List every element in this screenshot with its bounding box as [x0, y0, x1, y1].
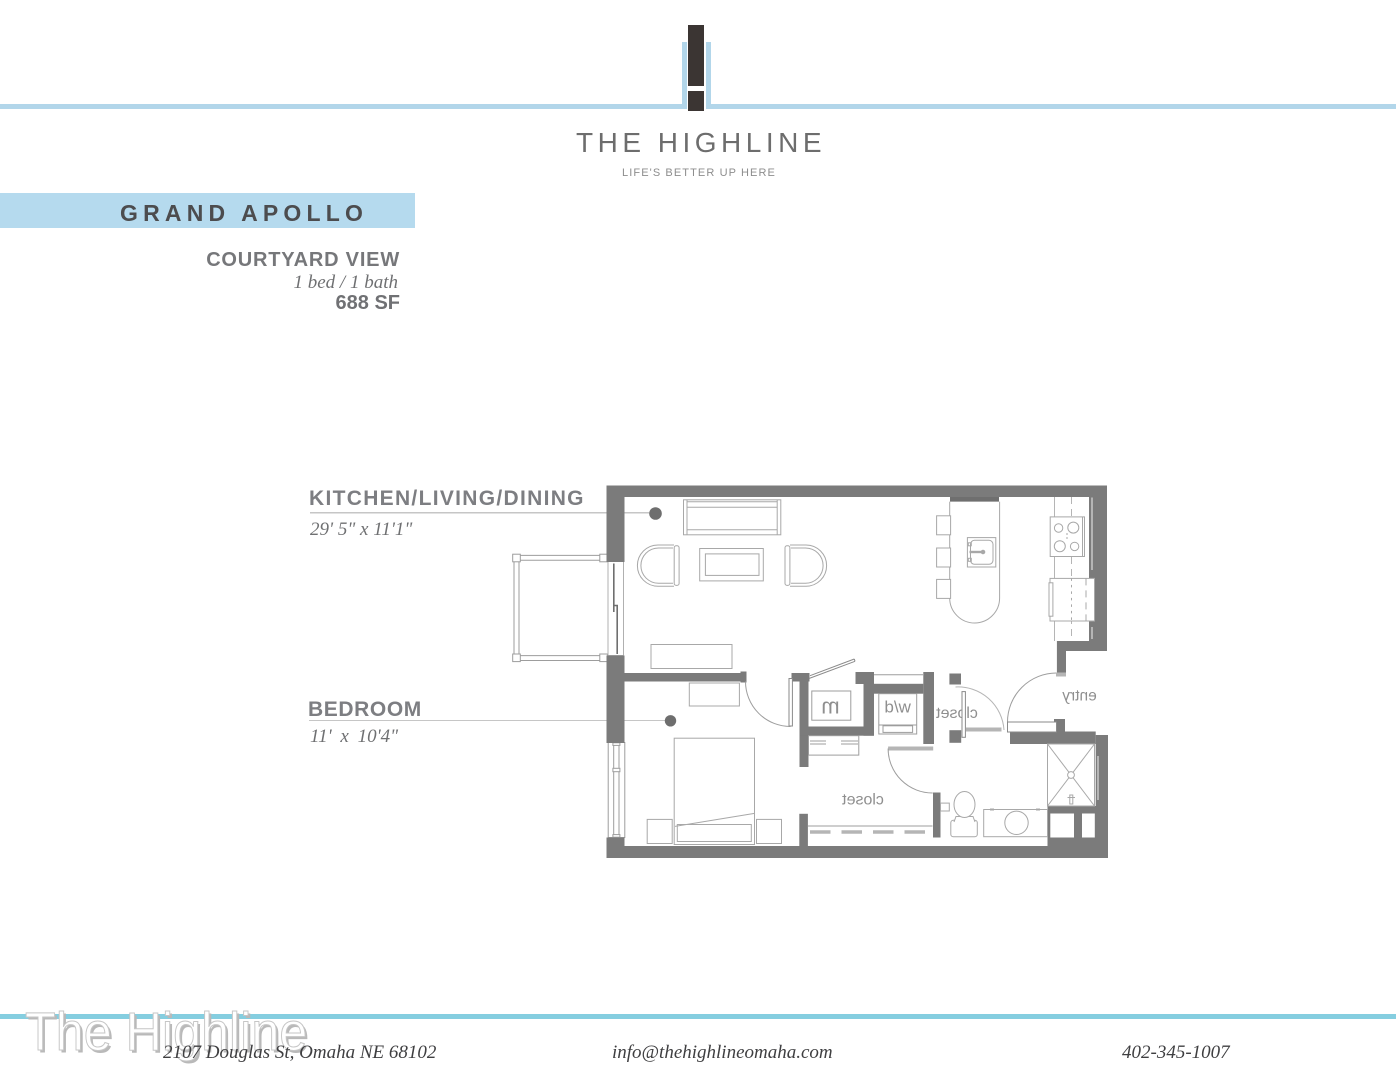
svg-text:w/d: w/d: [884, 698, 911, 717]
svg-text:closet: closet: [842, 792, 884, 809]
svg-text:closet: closet: [936, 705, 978, 722]
svg-text:m: m: [821, 694, 839, 719]
svg-text:entry: entry: [1062, 688, 1097, 705]
